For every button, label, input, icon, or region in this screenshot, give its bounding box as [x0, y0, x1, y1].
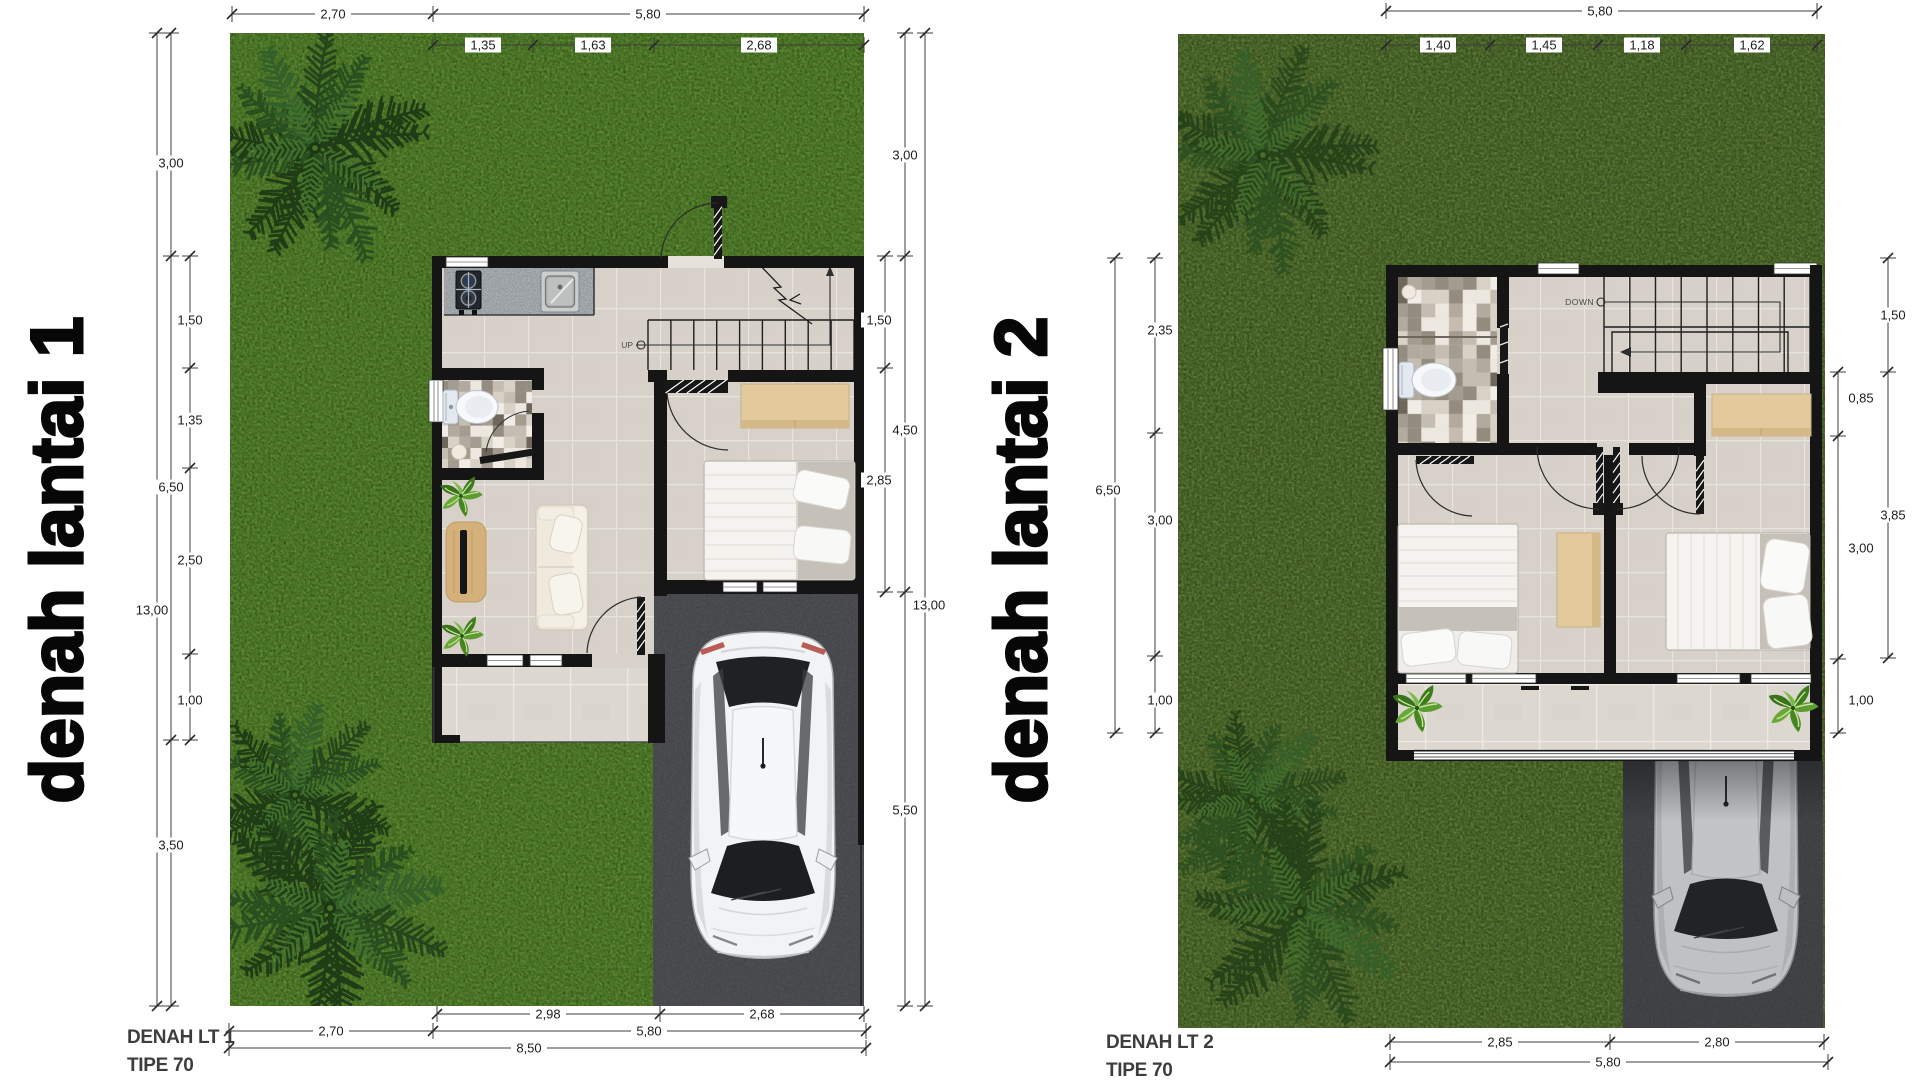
svg-text:1,00: 1,00 [1848, 693, 1873, 708]
svg-text:1,00: 1,00 [177, 693, 202, 708]
svg-text:2,35: 2,35 [1147, 323, 1172, 338]
svg-text:2,70: 2,70 [318, 1024, 343, 1039]
svg-text:DOWN: DOWN [1565, 297, 1594, 307]
svg-text:1,62: 1,62 [1739, 38, 1764, 53]
svg-text:5,80: 5,80 [1595, 1055, 1620, 1070]
svg-text:13,00: 13,00 [136, 603, 169, 618]
svg-text:TIPE 70: TIPE 70 [127, 1055, 194, 1076]
svg-text:3,50: 3,50 [158, 838, 183, 853]
svg-text:2,80: 2,80 [1704, 1035, 1729, 1050]
svg-text:0,85: 0,85 [1848, 391, 1873, 406]
svg-text:TIPE 70: TIPE 70 [1106, 1060, 1173, 1080]
svg-text:4,50: 4,50 [892, 423, 917, 438]
svg-text:DENAH LT 1: DENAH LT 1 [127, 1027, 235, 1048]
svg-text:1,35: 1,35 [470, 38, 495, 53]
svg-text:DENAH LT 2: DENAH LT 2 [1106, 1032, 1213, 1053]
svg-text:UP: UP [621, 340, 633, 350]
svg-text:2,85: 2,85 [1487, 1035, 1512, 1050]
svg-text:1,18: 1,18 [1629, 38, 1654, 53]
svg-text:1,63: 1,63 [580, 38, 605, 53]
svg-text:1,45: 1,45 [1531, 38, 1556, 53]
svg-text:6,50: 6,50 [158, 480, 183, 495]
svg-text:denah lantai 1: denah lantai 1 [17, 317, 98, 804]
svg-text:2,85: 2,85 [866, 473, 891, 488]
svg-text:denah lantai 2: denah lantai 2 [981, 317, 1062, 804]
svg-text:5,80: 5,80 [1587, 4, 1612, 19]
svg-text:1,00: 1,00 [1147, 693, 1172, 708]
svg-text:5,80: 5,80 [636, 1024, 661, 1039]
svg-text:3,00: 3,00 [892, 148, 917, 163]
svg-text:5,80: 5,80 [635, 7, 660, 22]
svg-text:2,68: 2,68 [749, 1007, 774, 1022]
svg-text:1,50: 1,50 [1880, 308, 1905, 323]
svg-text:5,50: 5,50 [892, 803, 917, 818]
svg-text:2,98: 2,98 [535, 1007, 560, 1022]
svg-text:1,50: 1,50 [866, 313, 891, 328]
svg-text:3,00: 3,00 [158, 156, 183, 171]
svg-text:3,00: 3,00 [1147, 513, 1172, 528]
svg-text:1,50: 1,50 [177, 313, 202, 328]
svg-text:1,35: 1,35 [177, 413, 202, 428]
svg-text:2,68: 2,68 [746, 38, 771, 53]
svg-text:3,85: 3,85 [1880, 508, 1905, 523]
svg-text:6,50: 6,50 [1095, 483, 1120, 498]
svg-text:3,00: 3,00 [1848, 541, 1873, 556]
svg-text:8,50: 8,50 [516, 1041, 541, 1056]
svg-text:2,50: 2,50 [177, 553, 202, 568]
svg-text:13,00: 13,00 [913, 598, 946, 613]
svg-text:1,40: 1,40 [1425, 38, 1450, 53]
svg-text:2,70: 2,70 [320, 7, 345, 22]
